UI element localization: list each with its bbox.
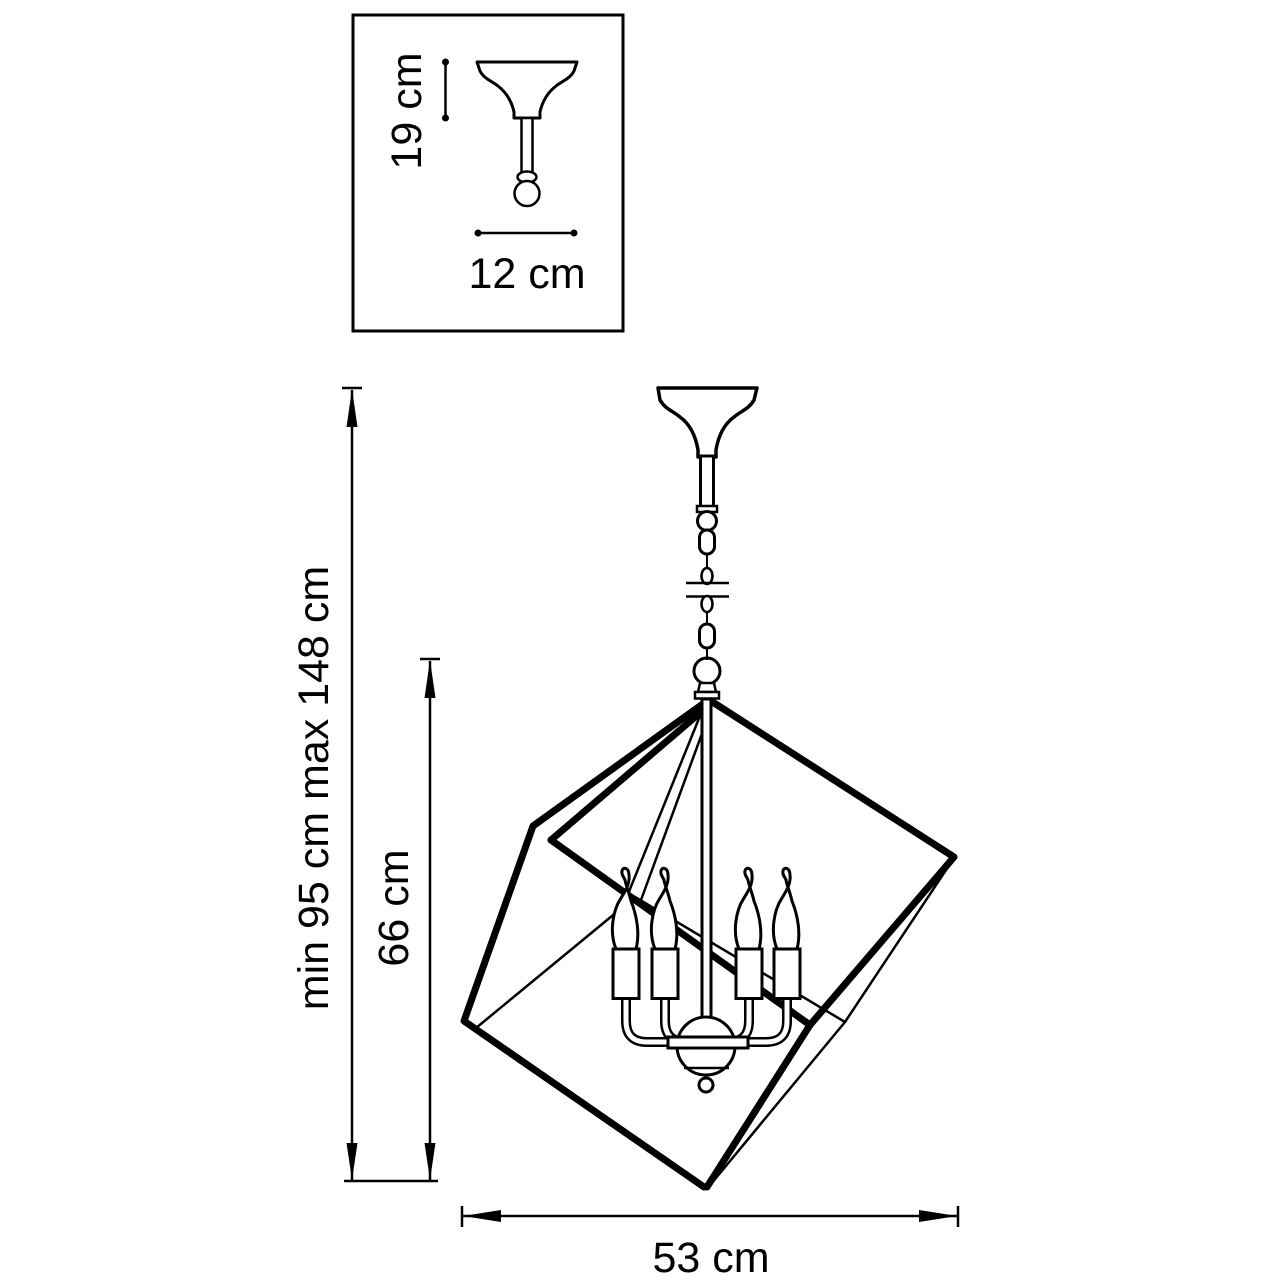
cage-edge [551,706,708,840]
canopy [658,388,757,457]
inset-width-label: 12 cm [468,250,585,298]
candle-sleeve [613,949,639,999]
dim-dot [442,115,449,122]
flame-icon [735,868,760,949]
candle-sleeve [774,949,800,999]
dim-dot [442,59,449,66]
chain-link [700,530,715,554]
flame-icon [651,868,676,949]
candle-sleeve [652,949,678,999]
dim-dot [475,230,482,237]
inset-detail: 19 cm 12 cm [353,15,623,331]
dimension-drawing: 19 cm 12 cm [0,0,1280,1280]
mount-neck [698,683,716,692]
inset-ball [515,181,540,206]
flame-icon [773,868,798,949]
cage-width-label: 53 cm [652,1234,769,1280]
dim-dot [571,230,578,237]
arrow-left-icon [463,1210,501,1222]
chain-link [700,624,715,648]
chandelier-drawing: min 95 cm max 148 cm 66 cm 53 cm [290,388,958,1280]
cage-edge [551,840,810,1025]
inset-height-label: 19 cm [383,52,431,169]
arrow-right-icon [919,1210,957,1222]
chain-link-small [702,568,713,584]
arrow-up-icon [347,389,358,427]
suspension [658,388,757,660]
inset-canopy-rod [522,118,533,175]
cage-height-dimension [420,659,440,1180]
hub-plate [668,1037,748,1048]
overall-height-label: min 95 cm max 148 cm [290,566,338,1010]
dimension-drawing-page: 19 cm 12 cm [0,0,1280,1280]
arrow-down-icon [347,1143,358,1180]
cage-edge [845,858,954,1022]
canopy-rod [701,456,714,507]
arrow-down-icon [425,1143,436,1180]
cage-height-label: 66 cm [370,849,418,966]
chain-ball [698,512,717,531]
cage-width-dimension [462,1206,958,1227]
center-stem [702,699,711,1019]
mount-ball [694,658,720,684]
arrow-up-icon [425,660,436,698]
hub-finial [699,1078,713,1092]
cage-mount [694,658,720,699]
mount-collar [695,692,719,699]
candle-sleeve [736,949,762,999]
overall-height-dimension [342,388,438,1181]
chain-link-small [702,596,713,612]
